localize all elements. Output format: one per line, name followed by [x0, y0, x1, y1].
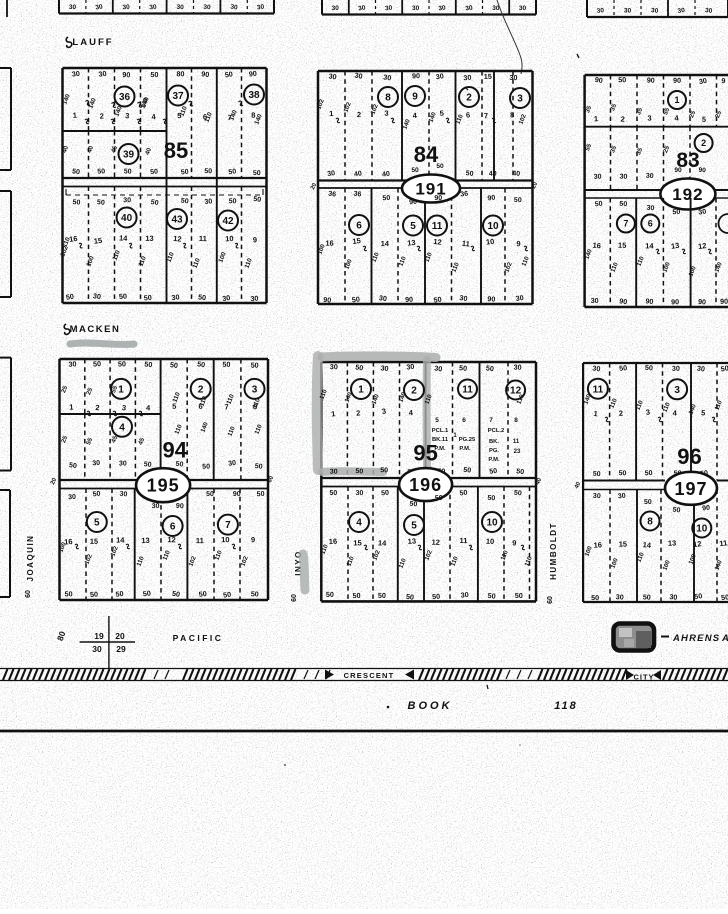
svg-text:40: 40 [382, 171, 391, 179]
svg-text:14: 14 [116, 535, 125, 544]
svg-text:30: 30 [328, 71, 337, 81]
svg-text:50: 50 [197, 359, 206, 369]
svg-text:90: 90 [248, 69, 257, 79]
svg-text:50: 50 [202, 463, 210, 470]
svg-text:50: 50 [465, 170, 474, 178]
svg-text:50: 50 [618, 75, 626, 84]
svg-text:30: 30 [119, 491, 128, 499]
svg-text:90: 90 [405, 295, 413, 304]
svg-text:30: 30 [434, 363, 443, 373]
svg-text:2: 2 [99, 112, 103, 121]
svg-text:5: 5 [410, 221, 416, 232]
svg-text:8: 8 [510, 110, 514, 119]
svg-text:40: 40 [512, 170, 520, 177]
svg-text:50: 50 [645, 470, 653, 477]
svg-text:50: 50 [143, 461, 151, 469]
svg-text:50: 50 [72, 168, 81, 176]
svg-text:90: 90 [487, 294, 496, 303]
svg-text:50: 50 [228, 168, 237, 176]
svg-text:30: 30 [677, 7, 686, 15]
svg-text:50: 50 [119, 291, 128, 301]
svg-text:30: 30 [354, 71, 363, 81]
svg-text:1: 1 [674, 95, 679, 105]
svg-text:50: 50 [229, 198, 237, 205]
svg-text:50: 50 [378, 591, 386, 600]
svg-text:30: 30 [406, 362, 415, 372]
svg-text:30: 30 [356, 490, 364, 497]
svg-text:11: 11 [462, 385, 473, 396]
svg-text:30: 30 [438, 4, 447, 12]
svg-text:2: 2 [701, 138, 706, 148]
svg-text:30: 30 [618, 493, 627, 501]
svg-text:40: 40 [121, 213, 133, 224]
svg-text:30: 30 [69, 4, 77, 11]
svg-text:8: 8 [647, 517, 653, 528]
svg-text:11: 11 [460, 536, 468, 545]
svg-text:BK.: BK. [489, 439, 499, 445]
svg-text:50: 50 [411, 167, 419, 174]
svg-text:11: 11 [513, 439, 520, 445]
svg-text:30: 30 [327, 170, 336, 178]
svg-text:39: 39 [123, 150, 135, 161]
svg-text:12: 12 [173, 234, 182, 244]
svg-text:6: 6 [356, 221, 362, 232]
svg-text:10: 10 [485, 237, 494, 247]
svg-text:50: 50 [222, 590, 231, 600]
svg-text:30: 30 [463, 73, 472, 83]
svg-text:15: 15 [352, 236, 361, 246]
svg-text:30: 30 [519, 5, 527, 12]
svg-text:3: 3 [647, 114, 651, 123]
svg-text:90: 90 [619, 296, 628, 306]
svg-text:PCL.2: PCL.2 [488, 428, 504, 434]
svg-text:30: 30 [593, 493, 601, 500]
svg-text:50: 50 [487, 591, 496, 601]
svg-text:50: 50 [432, 592, 440, 601]
svg-text:50: 50 [142, 589, 151, 599]
svg-text:30: 30 [698, 208, 707, 216]
svg-text:50: 50 [515, 591, 523, 600]
svg-text:10: 10 [696, 524, 708, 535]
svg-text:30: 30 [68, 494, 76, 501]
svg-text:11: 11 [196, 536, 204, 545]
svg-text:30: 30 [222, 293, 231, 303]
svg-text:50: 50 [721, 592, 728, 602]
svg-text:90: 90 [201, 69, 210, 79]
svg-text:50: 50 [436, 163, 444, 170]
svg-text:10: 10 [486, 518, 498, 529]
svg-text:30: 30 [619, 173, 627, 180]
svg-text:43: 43 [171, 215, 183, 226]
svg-text:90: 90 [409, 199, 418, 207]
svg-text:50: 50 [175, 461, 184, 469]
svg-text:30: 30 [435, 71, 444, 81]
svg-text:84: 84 [414, 142, 439, 167]
svg-text:1: 1 [69, 402, 73, 411]
svg-text:50: 50 [150, 70, 158, 79]
svg-text:2: 2 [357, 110, 361, 119]
svg-text:2: 2 [95, 403, 100, 412]
svg-text:30: 30 [250, 294, 259, 304]
svg-text:30: 30 [380, 363, 389, 373]
svg-text:50: 50 [355, 468, 364, 476]
svg-text:2: 2 [411, 386, 417, 397]
svg-text:HUMBOLDT: HUMBOLDT [549, 522, 558, 580]
svg-text:13: 13 [670, 241, 680, 251]
svg-text:50: 50 [222, 360, 230, 369]
svg-text:19: 19 [94, 631, 104, 641]
svg-text:50: 50 [720, 363, 728, 373]
svg-text:50: 50 [65, 292, 74, 302]
svg-text:50: 50 [644, 499, 652, 506]
svg-text:3: 3 [252, 385, 258, 396]
svg-text:30: 30 [383, 72, 392, 82]
svg-text:29: 29 [116, 644, 126, 654]
svg-text:11: 11 [461, 239, 470, 249]
svg-text:16: 16 [329, 537, 338, 546]
svg-text:14: 14 [381, 239, 390, 248]
svg-text:50: 50 [619, 363, 628, 373]
svg-text:30: 30 [515, 293, 524, 303]
svg-text:50: 50 [253, 196, 262, 204]
svg-text:11: 11 [432, 221, 443, 232]
svg-text:1: 1 [72, 111, 77, 120]
svg-text:6: 6 [648, 219, 653, 229]
svg-text:90: 90 [698, 297, 707, 307]
svg-text:50: 50 [381, 490, 390, 498]
svg-text:50: 50 [68, 462, 77, 470]
svg-text:192: 192 [672, 185, 703, 204]
svg-text:50: 50 [224, 69, 233, 79]
svg-text:10: 10 [225, 234, 234, 243]
svg-text:30: 30 [698, 76, 707, 86]
svg-text:50: 50 [90, 590, 98, 599]
svg-text:BOOK: BOOK [408, 700, 453, 712]
svg-text:9: 9 [721, 76, 726, 85]
svg-text:50: 50 [352, 591, 360, 600]
svg-text:50: 50 [144, 359, 153, 369]
svg-text:30: 30 [513, 362, 521, 371]
svg-text:1: 1 [118, 385, 124, 396]
svg-text:197: 197 [674, 479, 707, 499]
svg-text:50: 50 [251, 361, 259, 370]
svg-text:50: 50 [382, 195, 390, 203]
svg-text:90: 90 [412, 71, 420, 80]
svg-text:8: 8 [385, 93, 391, 104]
svg-text:50: 50 [643, 592, 651, 601]
svg-text:9: 9 [512, 538, 516, 547]
svg-text:30: 30 [230, 4, 238, 12]
svg-text:50: 50 [487, 495, 495, 502]
svg-text:13: 13 [141, 536, 150, 545]
svg-text:118: 118 [554, 700, 578, 712]
svg-text:9: 9 [251, 535, 255, 544]
svg-text:50: 50 [171, 589, 180, 599]
svg-text:LAUFF: LAUFF [72, 37, 113, 48]
svg-text:6: 6 [170, 522, 176, 533]
svg-text:36: 36 [119, 92, 131, 103]
svg-text:30: 30 [330, 469, 338, 476]
svg-text:30: 30 [358, 4, 367, 12]
svg-text:50: 50 [591, 593, 599, 602]
svg-text:37: 37 [172, 91, 184, 102]
svg-text:4: 4 [356, 518, 362, 529]
svg-text:AHRENS: AHRENS [672, 633, 720, 644]
svg-text:50: 50 [65, 589, 73, 598]
svg-text:40: 40 [489, 171, 497, 178]
svg-text:11: 11 [199, 234, 207, 243]
svg-text:JOAQUIN: JOAQUIN [26, 535, 35, 582]
svg-text:20: 20 [115, 631, 125, 641]
svg-text:50: 50 [694, 591, 703, 601]
svg-text:50: 50 [592, 471, 600, 479]
svg-text:90: 90 [323, 295, 332, 305]
svg-text:16: 16 [69, 234, 78, 244]
svg-text:50: 50 [514, 197, 522, 204]
svg-text:30: 30 [592, 363, 601, 373]
svg-text:MACKEN: MACKEN [70, 324, 121, 335]
svg-text:90: 90 [434, 195, 442, 202]
svg-text:36: 36 [328, 191, 337, 199]
svg-text:50: 50 [618, 470, 626, 477]
svg-text:50: 50 [326, 590, 334, 599]
svg-text:90: 90 [487, 194, 496, 202]
svg-text:50: 50 [206, 491, 214, 498]
svg-text:12: 12 [431, 538, 440, 547]
svg-text:9: 9 [516, 239, 520, 248]
svg-text:40: 40 [354, 170, 363, 178]
svg-text:95: 95 [413, 441, 437, 466]
svg-text:2: 2 [619, 409, 624, 418]
svg-text:15: 15 [619, 540, 627, 549]
svg-text:12: 12 [698, 241, 707, 251]
svg-text:50: 50 [489, 468, 498, 476]
svg-text:50: 50 [251, 589, 259, 598]
svg-text:30: 30 [646, 205, 655, 213]
svg-text:50: 50 [254, 463, 263, 471]
svg-text:2: 2 [620, 115, 625, 124]
svg-text:50: 50 [595, 201, 604, 209]
svg-text:14: 14 [378, 538, 388, 547]
svg-text:60: 60 [547, 596, 554, 604]
svg-text:50: 50 [351, 294, 360, 304]
svg-text:90: 90 [720, 297, 728, 306]
svg-text:30: 30 [228, 460, 237, 468]
svg-text:50: 50 [645, 363, 654, 373]
svg-text:50: 50 [124, 168, 132, 175]
svg-text:50: 50 [257, 491, 265, 498]
svg-text:50: 50 [92, 491, 101, 499]
svg-text:PACIFIC: PACIFIC [173, 633, 224, 643]
svg-text:50: 50 [115, 589, 124, 599]
svg-text:10: 10 [486, 537, 495, 546]
svg-text:50: 50 [459, 363, 468, 373]
svg-text:30: 30 [332, 5, 340, 12]
svg-text:90: 90 [674, 167, 682, 174]
svg-text:50: 50 [253, 170, 261, 177]
svg-text:1: 1 [331, 409, 336, 418]
svg-text:42: 42 [222, 216, 234, 227]
svg-text:50: 50 [514, 490, 523, 498]
svg-text:8: 8 [514, 417, 518, 424]
svg-text:30: 30 [412, 5, 420, 12]
svg-text:50: 50 [97, 168, 105, 176]
svg-text:50: 50 [433, 295, 442, 305]
svg-text:1: 1 [358, 385, 364, 396]
svg-text:30: 30 [71, 69, 80, 79]
svg-text:4: 4 [119, 422, 125, 433]
svg-text:90: 90 [645, 296, 654, 306]
svg-text:PG.25: PG.25 [459, 437, 476, 443]
svg-text:15: 15 [90, 537, 99, 546]
svg-text:30: 30 [330, 362, 338, 371]
svg-text:90: 90 [673, 76, 681, 85]
svg-text:5: 5 [439, 109, 444, 118]
svg-text:30: 30 [646, 173, 654, 180]
svg-text:30: 30 [509, 73, 517, 82]
svg-text:30: 30 [591, 296, 599, 305]
svg-text:30: 30 [68, 359, 77, 368]
svg-text:6: 6 [462, 417, 466, 424]
svg-text:50: 50 [409, 501, 418, 509]
svg-text:50: 50 [72, 199, 80, 206]
svg-text:2: 2 [356, 408, 361, 417]
svg-text:30: 30 [705, 7, 713, 15]
svg-text:3: 3 [517, 94, 523, 105]
svg-text:7: 7 [225, 520, 231, 531]
svg-text:30: 30 [669, 592, 678, 602]
svg-text:30: 30 [92, 291, 101, 301]
svg-text:14: 14 [119, 233, 129, 243]
svg-text:30: 30 [152, 503, 160, 510]
svg-text:50: 50 [198, 292, 207, 302]
svg-text:30: 30 [651, 7, 659, 15]
svg-text:50: 50 [435, 495, 443, 502]
svg-text:38: 38 [248, 90, 260, 101]
svg-text:50: 50 [180, 198, 189, 206]
svg-text:P.M.: P.M. [488, 457, 500, 463]
svg-text:30: 30 [95, 3, 104, 11]
svg-text:50: 50 [97, 199, 105, 207]
svg-text:50: 50 [672, 507, 681, 515]
svg-text:11: 11 [593, 384, 604, 395]
svg-text:60: 60 [291, 594, 298, 602]
svg-text:13: 13 [145, 234, 153, 243]
svg-text:36: 36 [353, 191, 362, 199]
svg-text:30: 30 [459, 293, 468, 303]
svg-text:7: 7 [489, 417, 493, 424]
svg-text:30: 30 [615, 592, 624, 601]
svg-text:12: 12 [433, 237, 442, 247]
svg-text:15: 15 [93, 236, 102, 246]
svg-text:30: 30 [119, 460, 127, 467]
svg-text:30: 30 [204, 198, 213, 206]
svg-text:3: 3 [384, 109, 388, 118]
svg-text:50: 50 [405, 592, 414, 602]
svg-text:13: 13 [407, 238, 416, 248]
svg-text:50: 50 [150, 168, 158, 176]
svg-text:30: 30 [385, 5, 393, 13]
svg-text:50: 50 [459, 490, 468, 498]
svg-text:30: 30 [98, 69, 107, 79]
svg-text:90: 90 [647, 75, 655, 84]
svg-text:80: 80 [176, 69, 184, 78]
svg-text:7: 7 [484, 111, 489, 120]
svg-text:30: 30 [465, 5, 473, 13]
svg-text:50: 50 [463, 467, 472, 475]
svg-text:14: 14 [645, 241, 654, 250]
svg-text:23: 23 [514, 449, 521, 455]
svg-text:85: 85 [164, 138, 188, 163]
svg-text:96: 96 [677, 444, 701, 469]
svg-text:5: 5 [435, 417, 439, 424]
svg-text:50: 50 [355, 362, 364, 372]
svg-text:90: 90 [594, 75, 603, 85]
svg-text:30: 30 [92, 460, 100, 468]
svg-text:A: A [721, 633, 728, 644]
svg-text:5: 5 [702, 115, 707, 124]
svg-text:90: 90 [176, 503, 184, 510]
svg-text:30: 30 [122, 4, 130, 12]
svg-text:90: 90 [698, 167, 706, 175]
svg-text:30: 30 [624, 7, 632, 14]
svg-text:10: 10 [487, 221, 499, 232]
svg-text:50: 50 [180, 169, 189, 177]
svg-text:2: 2 [466, 93, 472, 104]
svg-text:90: 90 [671, 297, 679, 306]
svg-text:CRESCENT: CRESCENT [344, 671, 395, 680]
svg-text:50: 50 [516, 468, 525, 476]
svg-text:5: 5 [411, 521, 417, 532]
svg-text:30: 30 [594, 173, 602, 180]
svg-text:50: 50 [150, 199, 159, 207]
svg-text:50: 50 [619, 201, 627, 208]
svg-text:50: 50 [204, 168, 212, 175]
svg-text:50: 50 [672, 209, 680, 216]
svg-text:1: 1 [329, 109, 334, 118]
svg-text:30: 30 [596, 7, 604, 15]
svg-text:5: 5 [94, 518, 100, 529]
svg-text:90: 90 [122, 70, 130, 79]
svg-text:16: 16 [593, 540, 602, 549]
svg-text:50: 50 [485, 363, 494, 373]
svg-text:30: 30 [378, 293, 387, 303]
svg-text:PG.: PG. [489, 448, 499, 454]
svg-text:30: 30 [176, 4, 184, 12]
svg-text:3: 3 [674, 385, 680, 396]
svg-text:9: 9 [253, 235, 257, 244]
svg-text:15: 15 [353, 538, 362, 547]
svg-text:15: 15 [484, 72, 492, 81]
svg-text:50: 50 [329, 490, 337, 497]
svg-text:30: 30 [149, 4, 157, 12]
svg-text:90: 90 [702, 505, 711, 513]
svg-text:16: 16 [592, 241, 601, 251]
svg-text:60: 60 [25, 590, 32, 598]
svg-text:36: 36 [460, 191, 469, 199]
svg-text:30: 30 [696, 364, 705, 374]
svg-text:50: 50 [143, 293, 152, 303]
svg-text:90: 90 [233, 491, 241, 498]
svg-text:50: 50 [380, 467, 388, 474]
svg-text:7: 7 [623, 219, 628, 229]
svg-text:30: 30 [203, 4, 211, 11]
svg-text:1: 1 [594, 114, 599, 123]
svg-text:30: 30 [92, 644, 102, 654]
svg-text:30: 30 [256, 4, 264, 12]
svg-text:9: 9 [412, 92, 418, 103]
svg-text:15: 15 [618, 241, 627, 250]
